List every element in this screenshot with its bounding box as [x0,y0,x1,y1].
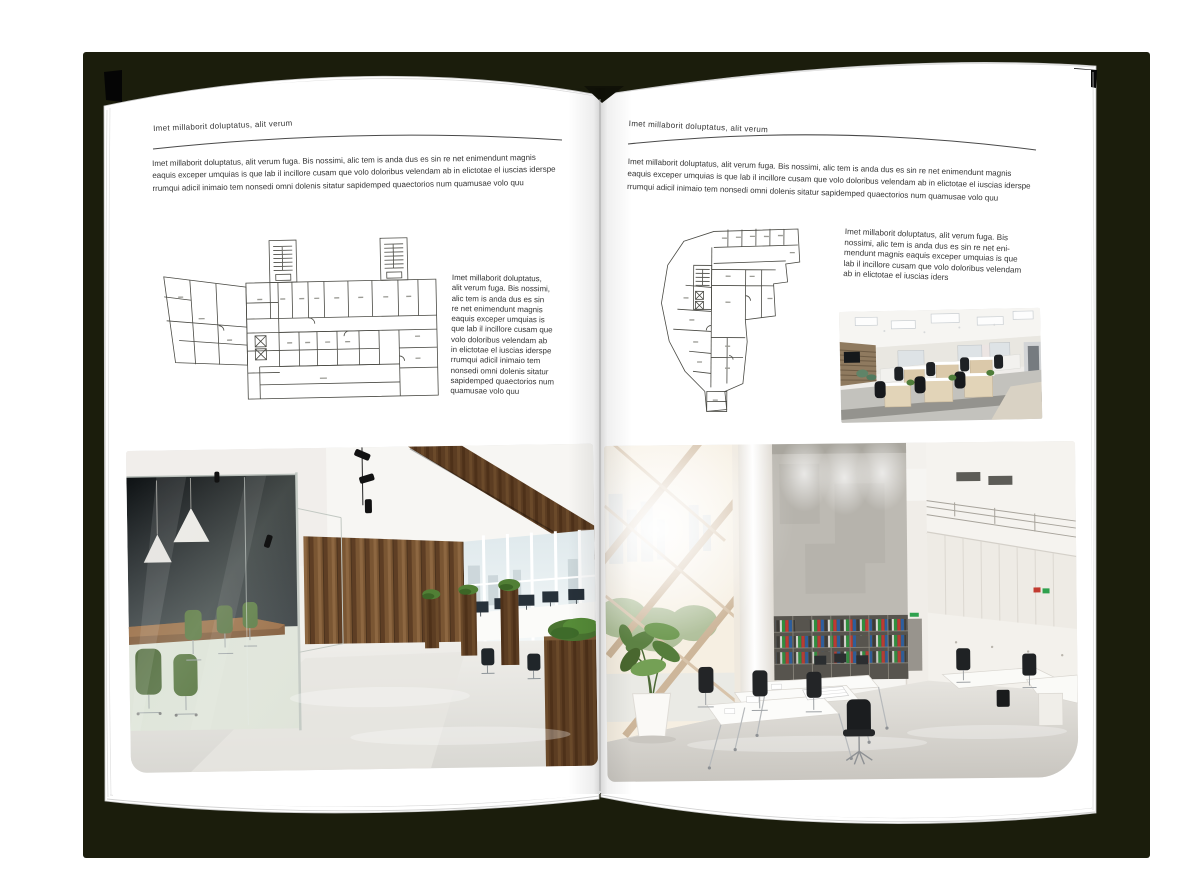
bookshelf [774,615,909,680]
plan-room-labels [178,292,421,382]
canvas: { "document": { "type": "magazine-spread… [0,0,1200,891]
wood-slat-wall [840,341,877,386]
right-office-photo [604,441,1078,782]
plan-room-labels [683,234,795,401]
door [908,619,923,671]
left-side-text: Imet millaborit doluptatus,alit verum fu… [450,273,572,398]
small-office-photo [839,308,1042,423]
left-office-photo [126,444,598,773]
wood-wall [303,534,465,658]
cover-shadow-wedge-left [104,70,122,102]
right-floor-plan [649,225,808,418]
text-line: quamusae volo quu [450,386,570,398]
left-intro-paragraph: Imet millaborit doluptatus, alit verum f… [152,151,583,195]
right-side-text: Imet millaborit doluptatus, alit verum f… [843,227,1041,287]
left-floor-plan [156,235,443,407]
foreground-planter [544,618,598,767]
exit-sign [910,613,919,617]
